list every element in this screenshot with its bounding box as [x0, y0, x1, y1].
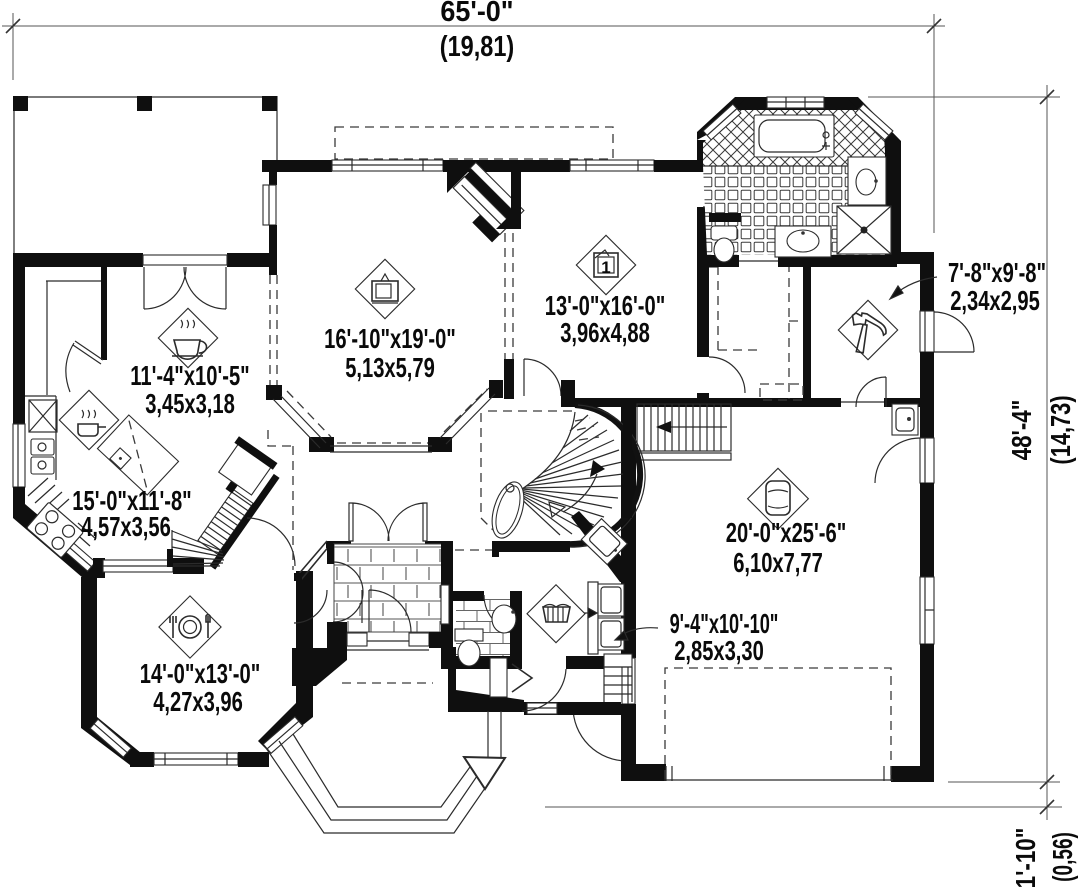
svg-text:(19,81): (19,81)	[440, 30, 514, 63]
svg-text:(0,56): (0,56)	[1047, 832, 1079, 882]
svg-text:2,85x3,30: 2,85x3,30	[674, 636, 764, 667]
svg-text:14'-0"x13'-0": 14'-0"x13'-0"	[140, 659, 261, 690]
svg-text:20'-0"x25'-6": 20'-0"x25'-6"	[726, 518, 847, 549]
svg-text:3,45x3,18: 3,45x3,18	[145, 389, 235, 420]
svg-text:(14,73): (14,73)	[1045, 395, 1076, 464]
svg-text:16'-10"x19'-0": 16'-10"x19'-0"	[324, 324, 456, 355]
svg-text:5,13x5,79: 5,13x5,79	[345, 353, 435, 384]
svg-text:48'-4": 48'-4"	[1007, 400, 1038, 461]
svg-text:2,34x2,95: 2,34x2,95	[950, 286, 1040, 317]
svg-text:65'-0": 65'-0"	[440, 0, 513, 27]
svg-text:4,57x3,56: 4,57x3,56	[81, 512, 171, 543]
svg-text:6,10x7,77: 6,10x7,77	[733, 548, 823, 579]
svg-text:4,27x3,96: 4,27x3,96	[153, 687, 243, 718]
svg-text:11'-4"x10'-5": 11'-4"x10'-5"	[130, 361, 249, 392]
svg-text:1'-10": 1'-10"	[1011, 828, 1042, 889]
svg-text:7'-8"x9'-8": 7'-8"x9'-8"	[948, 258, 1046, 289]
svg-text:1: 1	[601, 258, 610, 277]
svg-text:3,96x4,88: 3,96x4,88	[560, 318, 650, 349]
